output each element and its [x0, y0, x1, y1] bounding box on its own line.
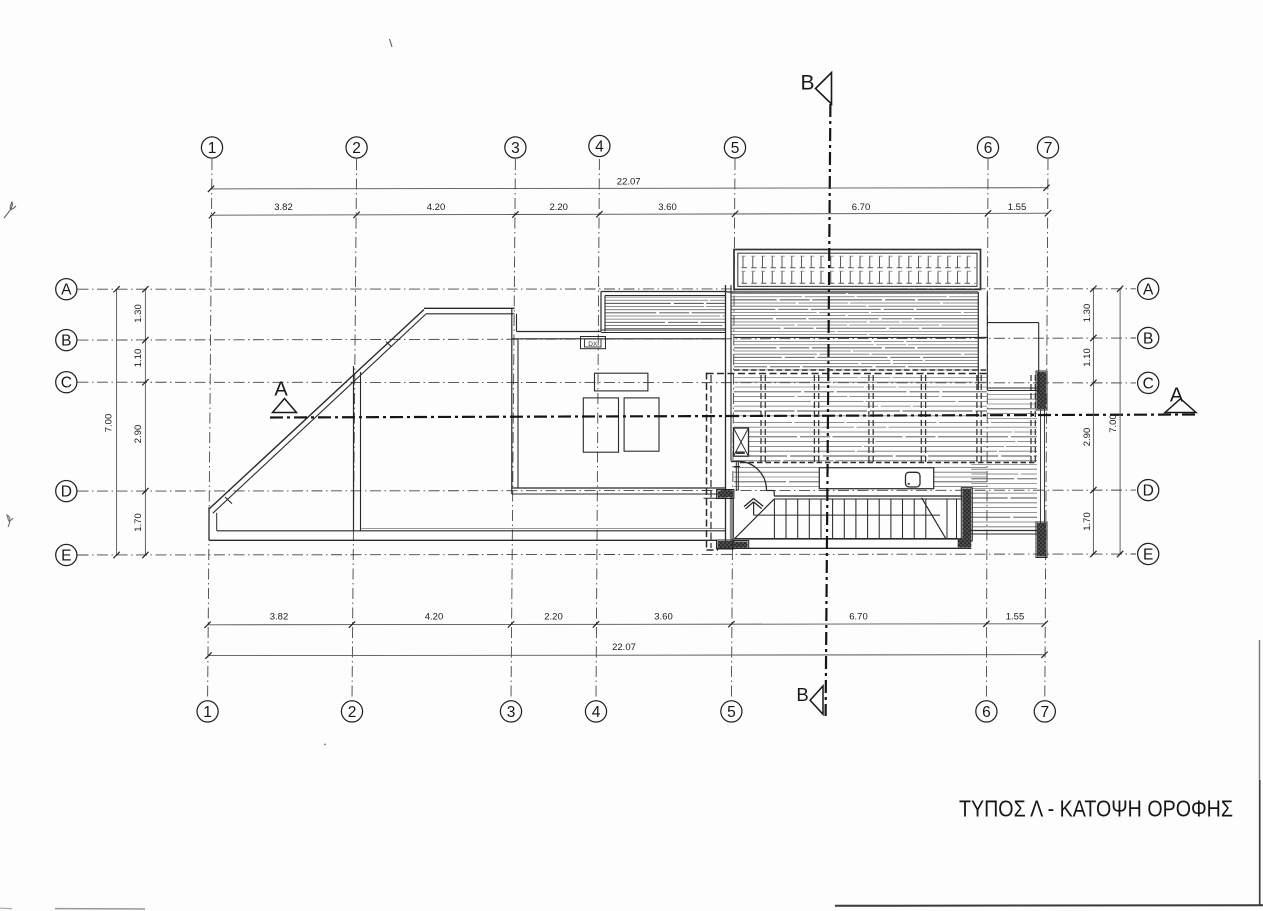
svg-text:1.10: 1.10 [1082, 348, 1093, 367]
svg-text:5: 5 [727, 704, 736, 721]
svg-text:1.55: 1.55 [1008, 202, 1027, 213]
svg-text:7: 7 [1044, 140, 1053, 157]
svg-text:B: B [800, 72, 814, 95]
svg-text:3.82: 3.82 [270, 612, 289, 623]
svg-text:B: B [1143, 331, 1153, 348]
svg-text:1.70: 1.70 [133, 513, 144, 532]
svg-text:1.70: 1.70 [1082, 512, 1093, 531]
svg-text:6: 6 [982, 704, 991, 721]
svg-text:7.00: 7.00 [103, 414, 114, 433]
svg-text:2.20: 2.20 [549, 202, 568, 213]
svg-text:1.30: 1.30 [1082, 304, 1093, 323]
svg-text:22.07: 22.07 [617, 177, 641, 188]
svg-text:4.20: 4.20 [425, 612, 444, 623]
svg-text:D: D [1143, 483, 1154, 500]
svg-text:7: 7 [1040, 704, 1049, 721]
svg-text:A: A [274, 379, 288, 401]
svg-text:2.90: 2.90 [1082, 428, 1093, 447]
svg-text:ΤΥΠΟΣ Λ - ΚΑΤΟΨΗ ΟΡΟΦΗΣ: ΤΥΠΟΣ Λ - ΚΑΤΟΨΗ ΟΡΟΦΗΣ [959, 796, 1233, 822]
svg-text:5: 5 [731, 140, 740, 157]
svg-text:1.10: 1.10 [133, 349, 144, 368]
svg-text:A: A [1143, 281, 1154, 298]
svg-text:1: 1 [208, 140, 217, 157]
svg-text:3.60: 3.60 [658, 202, 677, 213]
svg-text:E: E [1143, 547, 1153, 564]
svg-text:E: E [61, 548, 71, 565]
svg-text:6.70: 6.70 [849, 612, 868, 623]
svg-text:7.00: 7.00 [1108, 414, 1119, 433]
svg-text:4: 4 [592, 704, 601, 721]
svg-text:A: A [1170, 385, 1184, 407]
svg-text:6.70: 6.70 [852, 202, 871, 213]
svg-text:1.55: 1.55 [1006, 612, 1025, 623]
svg-text:4.20: 4.20 [427, 202, 446, 213]
svg-text:3.82: 3.82 [274, 202, 293, 213]
svg-text:6: 6 [984, 140, 993, 157]
svg-text:D: D [61, 484, 72, 501]
svg-text:3: 3 [511, 140, 520, 157]
svg-text:2.90: 2.90 [133, 425, 144, 444]
svg-text:3: 3 [507, 704, 516, 721]
svg-text:1.30: 1.30 [133, 304, 144, 323]
svg-text:C: C [61, 375, 72, 392]
svg-text:2.20: 2.20 [544, 612, 563, 623]
svg-text:4: 4 [595, 139, 604, 156]
svg-text:2: 2 [352, 140, 361, 157]
svg-text:C: C [1143, 375, 1154, 392]
svg-text:3.60: 3.60 [654, 612, 673, 623]
svg-text:2: 2 [348, 704, 357, 721]
svg-text:A: A [61, 282, 72, 299]
svg-text:B: B [61, 333, 71, 350]
svg-text:1: 1 [203, 704, 212, 721]
svg-text:22.07: 22.07 [612, 642, 636, 653]
svg-text:DX: DX [588, 341, 598, 348]
svg-text:B: B [796, 684, 808, 705]
